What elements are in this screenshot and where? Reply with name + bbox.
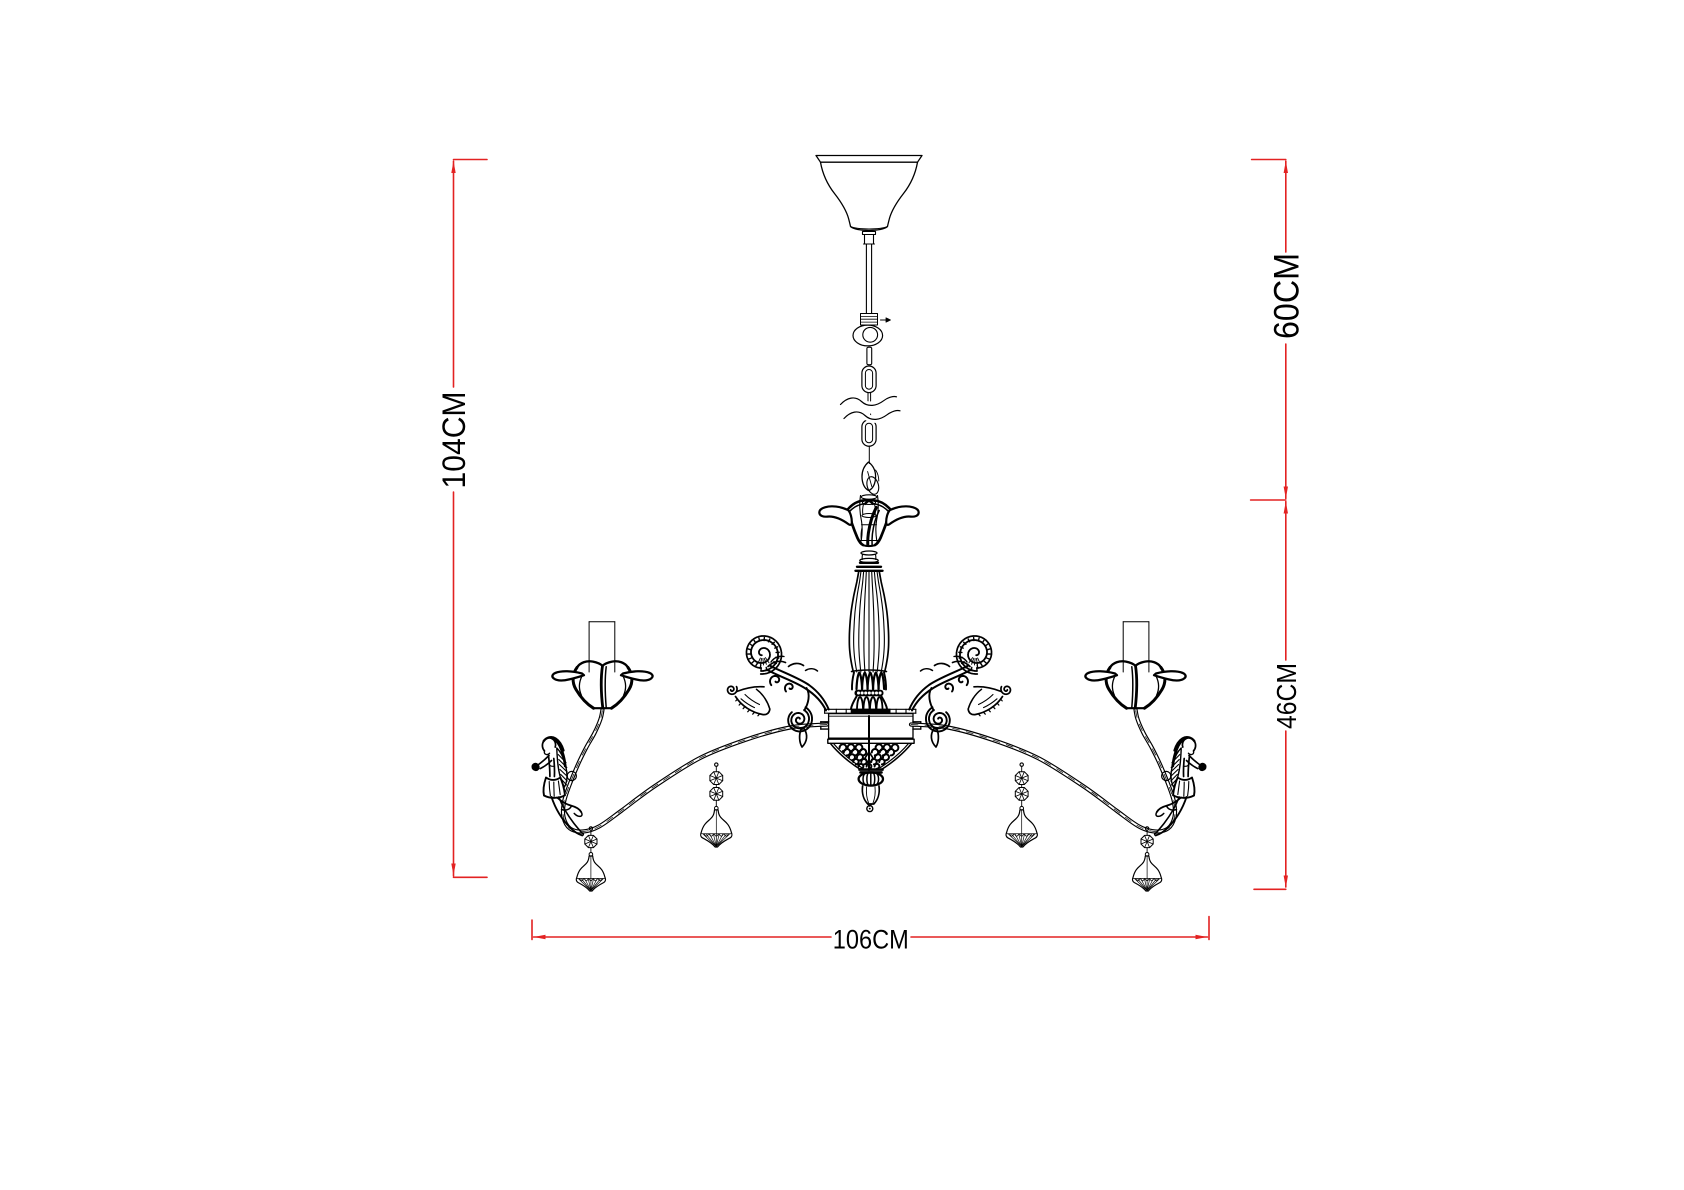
svg-text:104CM: 104CM [436,392,472,489]
svg-text:46CM: 46CM [1271,663,1302,729]
svg-text:106CM: 106CM [833,925,909,955]
svg-text:60CM: 60CM [1268,253,1307,339]
